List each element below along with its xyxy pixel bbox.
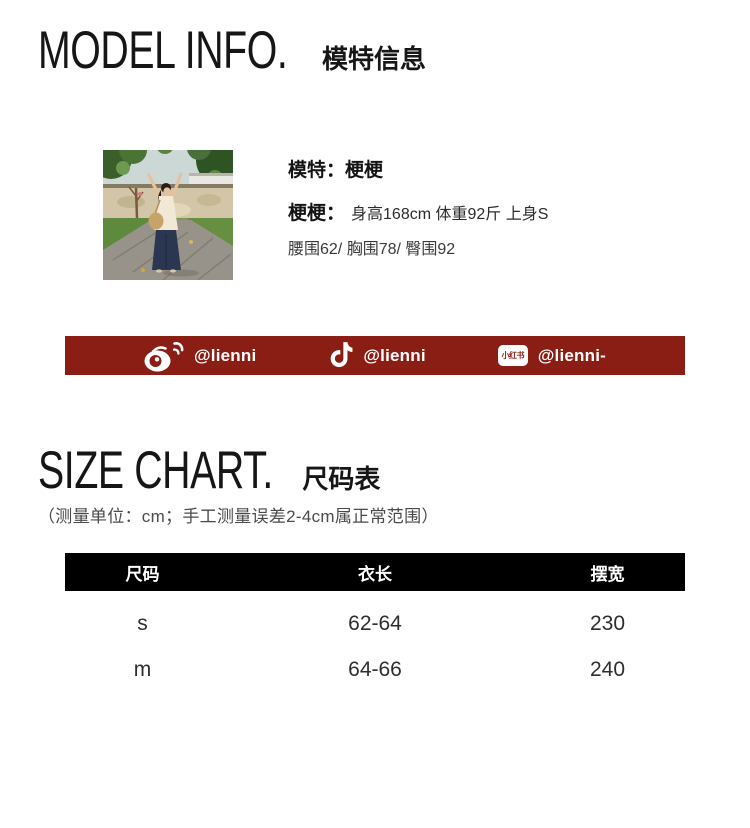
weibo-handle: @lienni [194,346,256,366]
length-value: 62-64 [220,612,530,636]
xiaohongshu-icon-text: 小红书 [502,350,525,361]
douyin-icon [328,341,353,370]
model-stats-value: 身高168cm 体重92斤 上身S [351,206,548,223]
model-name: 模特：梗梗 [288,155,688,182]
model-measurements: 腰围62/ 胸围78/ 臀围92 [288,235,688,259]
social-item-douyin: @lienni [328,341,425,370]
douyin-handle: @lienni [363,346,425,366]
product-detail-page: MODEL INFO. 模特信息 [0,0,750,828]
model-photo-illustration [103,150,233,280]
size-chart-title-en: SIZE CHART. [38,440,273,501]
size-value: m [65,658,220,682]
size-table-header-length: 衣长 [220,560,530,585]
size-chart-title: SIZE CHART. 尺码表 [38,440,380,501]
size-table: 尺码 衣长 摆宽 s 62-64 230 m 64-66 240 [65,553,685,693]
model-info-title-en: MODEL INFO. [38,20,287,81]
model-stats-label: 梗梗： [288,203,345,224]
table-row: s 62-64 230 [65,601,685,647]
hem-value: 240 [530,658,685,682]
social-media-banner: @lienni @lienni 小红书 @lienni- [65,336,685,375]
length-value: 64-66 [220,658,530,682]
size-chart-title-zh: 尺码表 [302,459,380,496]
xiaohongshu-icon: 小红书 [498,345,528,366]
size-value: s [65,612,220,636]
measurement-note: （测量单位：cm；手工测量误差2-4cm属正常范围） [38,502,439,527]
table-row: m 64-66 240 [65,647,685,693]
model-info-title: MODEL INFO. 模特信息 [38,20,426,81]
size-table-body: s 62-64 230 m 64-66 240 [65,591,685,693]
social-item-xiaohongshu: 小红书 @lienni- [498,345,606,366]
model-info-text: 模特：梗梗 梗梗：身高168cm 体重92斤 上身S 腰围62/ 胸围78/ 臀… [288,155,688,259]
hem-value: 230 [530,612,685,636]
xiaohongshu-handle: @lienni- [538,346,606,366]
size-table-header-row: 尺码 衣长 摆宽 [65,553,685,591]
size-table-header-size: 尺码 [65,560,220,585]
model-stats: 梗梗：身高168cm 体重92斤 上身S [288,198,688,225]
size-table-header-hem: 摆宽 [530,560,685,585]
weibo-icon [144,340,184,372]
model-photo [103,150,233,280]
social-item-weibo: @lienni [144,340,256,372]
model-info-title-zh: 模特信息 [322,39,426,76]
